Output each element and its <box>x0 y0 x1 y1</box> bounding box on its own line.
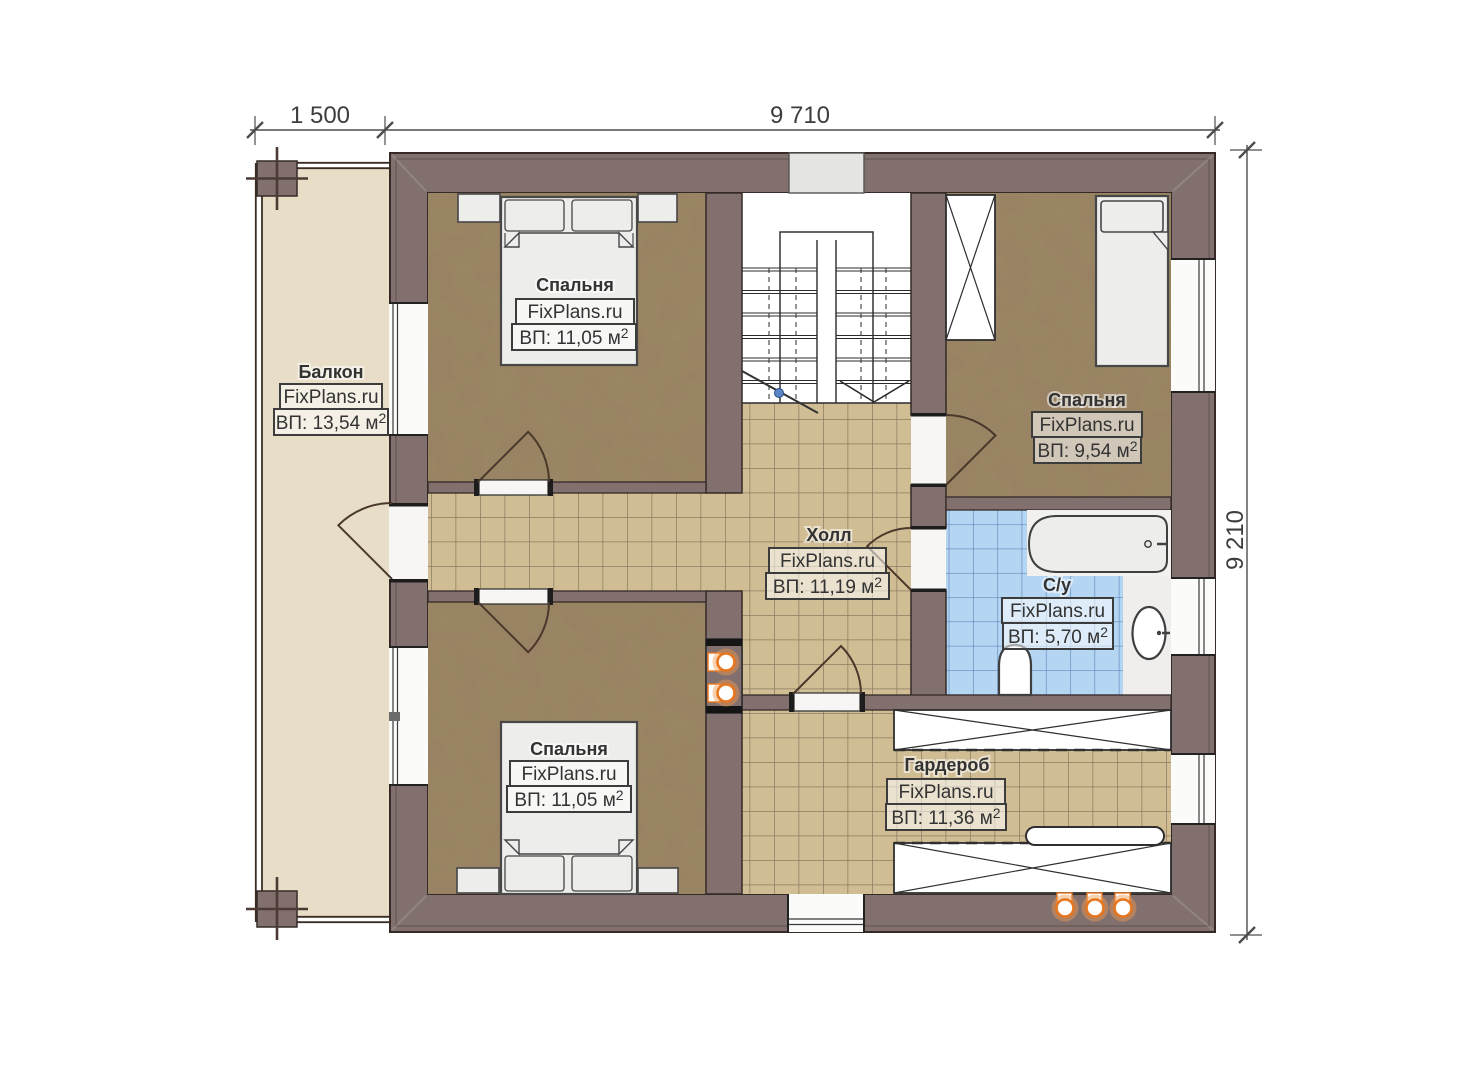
svg-text:ВП: 13,54 м2: ВП: 13,54 м2 <box>276 410 387 434</box>
svg-text:ВП: 5,70 м2: ВП: 5,70 м2 <box>1008 624 1108 648</box>
svg-text:FixPlans.ru: FixPlans.ru <box>283 387 378 408</box>
svg-text:ВП: 9,54 м2: ВП: 9,54 м2 <box>1037 438 1137 462</box>
svg-text:FixPlans.ru: FixPlans.ru <box>780 551 875 572</box>
svg-text:Спальня: Спальня <box>1048 390 1126 410</box>
svg-text:FixPlans.ru: FixPlans.ru <box>521 764 616 785</box>
svg-text:ВП: 11,36 м2: ВП: 11,36 м2 <box>891 805 1000 829</box>
svg-text:ВП: 11,19 м2: ВП: 11,19 м2 <box>773 574 882 598</box>
svg-text:FixPlans.ru: FixPlans.ru <box>898 782 993 803</box>
svg-text:ВП: 11,05 м2: ВП: 11,05 м2 <box>519 325 628 349</box>
svg-text:Спальня: Спальня <box>536 275 614 295</box>
svg-text:Холл: Холл <box>806 525 851 545</box>
svg-text:С/у: С/у <box>1043 575 1071 595</box>
svg-text:FixPlans.ru: FixPlans.ru <box>1010 601 1105 622</box>
svg-text:FixPlans.ru: FixPlans.ru <box>1039 415 1134 436</box>
svg-text:Спальня: Спальня <box>530 739 608 759</box>
svg-text:9 710: 9 710 <box>770 102 830 129</box>
svg-text:Балкон: Балкон <box>298 362 363 382</box>
svg-text:Гардероб: Гардероб <box>904 755 989 775</box>
svg-text:FixPlans.ru: FixPlans.ru <box>527 302 622 323</box>
svg-text:1 500: 1 500 <box>290 102 350 129</box>
svg-text:ВП: 11,05 м2: ВП: 11,05 м2 <box>514 787 623 811</box>
svg-text:9 210: 9 210 <box>1222 510 1249 570</box>
